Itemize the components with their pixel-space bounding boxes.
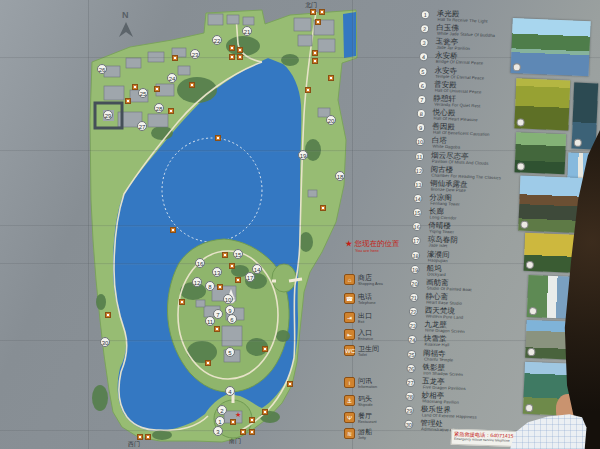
facility-legend-row: ⚓ 码头 Shipside — [344, 395, 373, 408]
map-site-marker-24: 24 — [167, 73, 177, 83]
site-number-badge: 23 — [408, 321, 417, 330]
west-gate-label: 西门 — [128, 441, 140, 447]
map-facility-marker — [328, 75, 334, 81]
map-facility-marker — [230, 419, 236, 425]
site-number-badge: 8 — [417, 109, 426, 118]
map-facility-marker — [240, 429, 246, 435]
map-facility-marker — [310, 9, 316, 15]
facility-name-zh: 码头 — [358, 395, 373, 403]
site-name-en: Jade Islet — [428, 244, 447, 250]
park-map-sign-photo: N 北门 南门 西门 ★ 您现在的位置 You are here ⌂ 商店 Sh… — [0, 0, 600, 449]
compass-north-label: N — [122, 10, 129, 20]
facility-legend-row: ⇥ 出口 Exit — [344, 312, 372, 325]
facility-name-zh: 卫生间 — [358, 345, 379, 353]
facility-name-en: Telephone — [358, 301, 376, 306]
map-facility-marker — [312, 50, 318, 56]
photo-number-badge — [520, 221, 528, 229]
photo-number-badge — [527, 348, 535, 356]
map-facility-marker — [137, 434, 143, 440]
site-number-badge: 13 — [414, 180, 423, 189]
map-site-marker-4: 4 — [225, 386, 235, 396]
facility-name-zh: 电话 — [358, 293, 376, 301]
shop-icon: ⌂ — [344, 274, 355, 285]
map-site-marker-11: 11 — [205, 316, 215, 326]
facility-name-zh: 入口 — [358, 329, 373, 337]
facility-legend-row: ☎ 电话 Telephone — [344, 293, 376, 306]
facility-legend-row: Ψ 餐厅 Restaurant — [344, 412, 377, 425]
map-facility-marker — [237, 54, 243, 60]
site-number-badge: 29 — [405, 406, 414, 415]
map-site-marker-21: 21 — [242, 26, 252, 36]
map-facility-marker — [249, 429, 255, 435]
site-number-badge: 5 — [418, 67, 427, 76]
map-facility-marker — [249, 417, 255, 423]
site-number-badge: 20 — [410, 279, 419, 288]
map-site-marker-16: 16 — [195, 258, 205, 268]
map-facility-marker — [145, 434, 151, 440]
map-facility-marker — [154, 86, 160, 92]
map-site-marker-18: 18 — [335, 171, 345, 181]
you-are-here-zh: 您现在的位置 — [354, 239, 399, 248]
site-number-badge: 16 — [412, 222, 421, 231]
photo-number-badge — [526, 261, 534, 269]
photo-number-badge — [574, 139, 582, 147]
site-number-badge: 30 — [404, 420, 413, 429]
map-facility-marker — [229, 45, 235, 51]
site-number-badge: 4 — [419, 52, 428, 61]
facility-legend-row: WC 卫生间 Toilet — [344, 345, 379, 358]
facility-name-zh: 游船 — [358, 428, 372, 436]
map-facility-marker — [222, 252, 228, 258]
facility-name-en: Information — [358, 385, 377, 390]
facility-name-zh: 餐厅 — [358, 412, 377, 420]
map-facility-marker — [229, 263, 235, 269]
site-number-badge: 9 — [416, 123, 425, 132]
entrance-icon: ⇤ — [344, 329, 355, 340]
compass-arrow — [119, 22, 133, 37]
map-facility-marker — [315, 19, 321, 25]
facility-name-en: Entrance — [358, 337, 373, 342]
scenic-photo-yellowgate — [514, 78, 570, 130]
facility-legend-row: i 问讯 Information — [344, 377, 377, 390]
ne-pond — [343, 12, 356, 58]
panel-seam — [88, 0, 90, 449]
map-facility-marker — [262, 409, 268, 415]
map-site-marker-2: 2 — [217, 405, 227, 415]
information-icon: i — [344, 377, 355, 388]
map-site-marker-25: 25 — [138, 88, 148, 98]
map-site-marker-6: 6 — [227, 314, 237, 324]
exit-icon: ⇥ — [344, 312, 355, 323]
map-facility-marker — [319, 9, 325, 15]
south-gate-label: 南门 — [229, 438, 241, 444]
map-site-marker-10: 10 — [223, 294, 233, 304]
photo-number-badge — [529, 307, 537, 315]
map-site-marker-22: 22 — [212, 35, 222, 45]
site-number-badge: 11 — [415, 151, 424, 160]
site-number-badge: 1 — [421, 10, 430, 19]
site-number-badge: 10 — [415, 137, 424, 146]
map-facility-marker — [125, 98, 131, 104]
boat-icon: ≋ — [344, 428, 355, 439]
facility-name-en: Exit — [358, 320, 372, 325]
map-facility-marker — [172, 55, 178, 61]
site-number-badge: 2 — [420, 24, 429, 33]
map-site-marker-28: 28 — [154, 103, 164, 113]
map-site-marker-20: 20 — [326, 115, 336, 125]
map-facility-marker — [320, 205, 326, 211]
photo-number-badge — [517, 162, 525, 170]
map-facility-marker — [262, 346, 268, 352]
map-facility-marker — [215, 135, 221, 141]
site-number-badge: 19 — [410, 264, 419, 273]
facility-name-en: Shipside — [358, 403, 373, 408]
facility-legend-row: ≋ 游船 Jetty — [344, 428, 372, 441]
map-facility-marker — [217, 284, 223, 290]
map-site-marker-8: 8 — [205, 281, 215, 291]
east-islet — [272, 264, 296, 292]
facility-name-zh: 商店 — [358, 274, 383, 282]
facility-name-en: Toilet — [358, 353, 379, 358]
anchor-icon: ⚓ — [344, 395, 355, 406]
photo-number-badge — [525, 404, 533, 412]
map-facility-marker — [214, 326, 220, 332]
map-facility-marker — [312, 58, 318, 64]
facility-name-zh: 出口 — [358, 312, 372, 320]
map-site-marker-26: 26 — [97, 64, 107, 74]
map-site-marker-13: 13 — [212, 267, 222, 277]
map-facility-marker — [305, 87, 311, 93]
map-facility-marker — [189, 82, 195, 88]
site-number-badge: 15 — [413, 208, 422, 217]
site-number-badge: 26 — [406, 363, 415, 372]
map-site-marker-29: 29 — [103, 110, 113, 120]
map-site-marker-9: 9 — [225, 305, 235, 315]
site-number-badge: 21 — [409, 293, 418, 302]
north-gate-label: 北门 — [305, 2, 317, 8]
site-number-badge: 22 — [409, 307, 418, 316]
scenic-photo-greenhall — [515, 132, 567, 174]
map-facility-marker — [132, 84, 138, 90]
site-number-badge: 24 — [408, 335, 417, 344]
site-number-badge: 12 — [414, 166, 423, 175]
facility-legend-row: ⌂ 商店 Shopping Area — [344, 274, 383, 287]
map-facility-marker — [179, 299, 185, 305]
site-number-badge: 7 — [417, 95, 426, 104]
photo-number-badge — [513, 63, 521, 71]
map-site-marker-7: 7 — [213, 309, 223, 319]
map-facility-marker — [235, 277, 241, 283]
site-number-badge: 14 — [413, 194, 422, 203]
facility-name-en: Shopping Area — [358, 282, 383, 287]
facility-name-en: Jetty — [358, 436, 372, 441]
map-facility-marker — [229, 54, 235, 60]
map-site-marker-17: 17 — [245, 272, 255, 282]
site-number-badge: 25 — [407, 349, 416, 358]
facility-name-zh: 问讯 — [358, 377, 377, 385]
map-facility-marker — [287, 381, 293, 387]
site-number-badge: 3 — [419, 38, 428, 47]
map-site-marker-30: 30 — [100, 337, 110, 347]
site-number-badge: 27 — [406, 378, 415, 387]
star-icon: ★ — [345, 239, 353, 248]
map-site-marker-5: 5 — [225, 347, 235, 357]
site-number-badge: 28 — [405, 392, 414, 401]
map-site-marker-27: 27 — [137, 121, 147, 131]
map-facility-marker — [170, 227, 176, 233]
scenic-photo-lakeview — [511, 18, 591, 76]
facility-name-en: Restaurant — [358, 420, 377, 425]
site-number-badge: 6 — [418, 81, 427, 90]
map-facility-marker — [205, 360, 211, 366]
map-site-marker-1: 1 — [215, 416, 225, 426]
map-facility-marker — [105, 312, 111, 318]
you-are-here-star-icon: ★ — [235, 411, 241, 418]
map-site-marker-12: 12 — [192, 277, 202, 287]
map-site-marker-3: 3 — [213, 426, 223, 436]
site-number-badge: 18 — [411, 250, 420, 259]
telephone-icon: ☎ — [344, 293, 355, 304]
toilet-icon: WC — [344, 345, 355, 356]
photo-number-badge — [516, 118, 524, 126]
facility-legend-row: ⇤ 入口 Entrance — [344, 329, 373, 342]
map-facility-marker — [237, 47, 243, 53]
map-site-marker-23: 23 — [190, 49, 200, 59]
scenic-photo-darkteal — [572, 83, 599, 150]
map-site-marker-19: 19 — [298, 150, 308, 160]
restaurant-icon: Ψ — [344, 412, 355, 423]
map-facility-marker — [168, 108, 174, 114]
site-number-badge: 17 — [412, 236, 421, 245]
map-site-marker-15: 15 — [233, 249, 243, 259]
